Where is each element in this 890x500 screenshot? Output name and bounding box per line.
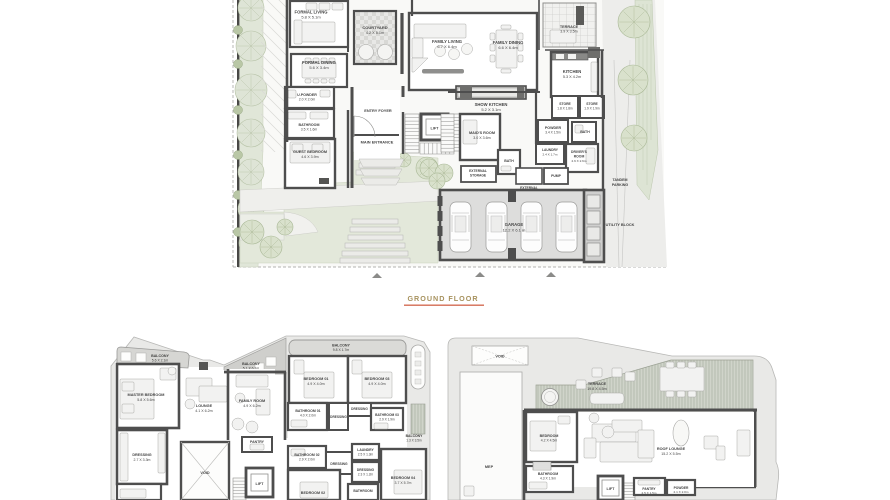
svg-text:FAMILY ROOM: FAMILY ROOM	[239, 399, 265, 403]
svg-text:BATHROOM: BATHROOM	[299, 123, 320, 127]
svg-text:BALCONY: BALCONY	[151, 354, 169, 358]
svg-text:KITCHEN: KITCHEN	[563, 69, 582, 74]
svg-text:UTILITY BLOCK: UTILITY BLOCK	[606, 223, 635, 227]
svg-text:MEP: MEP	[485, 465, 494, 469]
svg-text:1.8 X 1.8m: 1.8 X 1.8m	[557, 107, 573, 111]
svg-text:BATHROOM: BATHROOM	[538, 472, 558, 476]
svg-text:3.4 X 1.5m: 3.4 X 1.5m	[545, 131, 561, 135]
svg-text:COURTYARD: COURTYARD	[362, 25, 387, 30]
svg-text:4.1 X 6.2m: 4.1 X 6.2m	[195, 409, 212, 413]
svg-text:15.2 X 5.5m: 15.2 X 5.5m	[661, 452, 680, 456]
svg-text:3.0 X 3.6m: 3.0 X 3.6m	[473, 136, 490, 140]
svg-text:PANTRY: PANTRY	[250, 440, 265, 444]
svg-text:4.3 X 1.9m: 4.3 X 1.9m	[540, 477, 556, 481]
svg-text:BALCONY: BALCONY	[242, 362, 260, 366]
svg-text:MASTER BEDROOM: MASTER BEDROOM	[128, 393, 165, 397]
svg-text:4.9 X 4.0m: 4.9 X 4.0m	[368, 382, 385, 386]
svg-text:DRESSING: DRESSING	[132, 453, 151, 457]
svg-text:4.0 X 2.0m: 4.0 X 2.0m	[300, 414, 316, 418]
svg-text:DRIVER'S: DRIVER'S	[571, 150, 588, 154]
svg-text:4.9 X 4.0m: 4.9 X 4.0m	[307, 382, 324, 386]
svg-text:LIFT: LIFT	[606, 487, 615, 491]
svg-text:2.1 X 2.0m: 2.1 X 2.0m	[674, 490, 689, 494]
svg-text:2.0 X 2.0m: 2.0 X 2.0m	[299, 98, 316, 102]
svg-text:4.2 X 4.5m: 4.2 X 4.5m	[541, 439, 558, 443]
svg-text:5.6 X 2.1m: 5.6 X 2.1m	[152, 359, 169, 363]
svg-text:MAID'S ROOM: MAID'S ROOM	[469, 131, 495, 135]
svg-text:DRESSING: DRESSING	[330, 462, 348, 466]
svg-text:BATHROOM: BATHROOM	[353, 489, 372, 493]
svg-text:LAUNDRY: LAUNDRY	[542, 148, 559, 152]
svg-text:BATH: BATH	[580, 130, 590, 134]
svg-text:3.5 X 1.6m: 3.5 X 1.6m	[301, 128, 318, 132]
svg-text:U.POWDER: U.POWDER	[297, 93, 317, 97]
svg-text:2.9 X 2.0m: 2.9 X 2.0m	[299, 458, 315, 462]
svg-text:MAIN ENTRANCE: MAIN ENTRANCE	[361, 140, 394, 145]
svg-text:ROOM: ROOM	[574, 155, 585, 159]
svg-text:DRESSING: DRESSING	[357, 468, 375, 472]
svg-text:4.9 X 6.2m: 4.9 X 6.2m	[243, 404, 260, 408]
svg-text:BEDROOM 04: BEDROOM 04	[391, 476, 416, 480]
svg-text:PARKING: PARKING	[612, 183, 629, 187]
svg-text:5.8 X 5.6m: 5.8 X 5.6m	[137, 398, 154, 402]
svg-text:12.2 X 6.1 m: 12.2 X 6.1 m	[503, 228, 526, 233]
svg-text:STORE: STORE	[559, 102, 571, 106]
svg-text:EXTERNAL: EXTERNAL	[469, 169, 487, 173]
svg-text:BATHROOM 01: BATHROOM 01	[295, 409, 320, 413]
svg-text:5.6 X 3.4m: 5.6 X 3.4m	[309, 65, 329, 70]
svg-text:3.9 X 3.5m: 3.9 X 3.5m	[560, 30, 577, 34]
svg-text:VOID: VOID	[200, 471, 210, 475]
svg-text:BEDROOM 02: BEDROOM 02	[301, 491, 325, 495]
svg-text:ROOF LOUNGE: ROOF LOUNGE	[657, 447, 686, 451]
svg-text:2.7 X 3.3m: 2.7 X 3.3m	[134, 458, 151, 462]
svg-text:DRESSING: DRESSING	[330, 415, 347, 419]
svg-text:LIFT: LIFT	[255, 482, 264, 486]
svg-text:6.7 X 6.4m: 6.7 X 6.4m	[437, 44, 457, 49]
svg-text:STORE: STORE	[586, 102, 598, 106]
svg-text:19.8 X 4.5m: 19.8 X 4.5m	[587, 387, 606, 391]
svg-text:BEDROOM 01: BEDROOM 01	[303, 377, 328, 381]
svg-text:DRESSING: DRESSING	[351, 407, 368, 411]
svg-text:3.7 X 5.7m: 3.7 X 5.7m	[395, 481, 412, 485]
svg-text:6.6 X 6.4m: 6.6 X 6.4m	[498, 45, 518, 50]
svg-text:LOUNGE: LOUNGE	[196, 404, 213, 408]
svg-text:1.3 X 3.5m: 1.3 X 3.5m	[406, 439, 422, 443]
svg-text:BALCONY: BALCONY	[332, 344, 350, 348]
svg-text:STORAGE: STORAGE	[470, 174, 487, 178]
svg-text:2.3 X 1.2m: 2.3 X 1.2m	[358, 473, 374, 477]
svg-text:5.8 X 5.1m: 5.8 X 5.1m	[301, 15, 321, 20]
svg-text:BATH: BATH	[504, 159, 514, 163]
svg-text:BATHROOM 02: BATHROOM 02	[294, 453, 319, 457]
svg-text:POWDER: POWDER	[545, 126, 562, 130]
svg-text:VOID: VOID	[495, 355, 505, 359]
svg-text:BEDROOM 03: BEDROOM 03	[364, 377, 389, 381]
svg-text:2.5 X 1.3m: 2.5 X 1.3m	[358, 453, 374, 457]
svg-text:LAUNDRY: LAUNDRY	[357, 448, 374, 452]
svg-text:9.8 X 1.7m: 9.8 X 1.7m	[333, 348, 350, 352]
svg-text:TERRACE: TERRACE	[588, 382, 607, 386]
svg-text:TANDEM: TANDEM	[612, 178, 627, 182]
svg-text:2.5 X 1.5m: 2.5 X 1.5m	[642, 491, 657, 495]
svg-text:2.9 X 1.9m: 2.9 X 1.9m	[379, 418, 395, 422]
svg-text:GROUND FLOOR: GROUND FLOOR	[407, 294, 478, 303]
svg-text:GARAGE: GARAGE	[505, 222, 524, 227]
svg-text:1.9 X 1.9m: 1.9 X 1.9m	[584, 107, 600, 111]
svg-text:2.4 X 1.7m: 2.4 X 1.7m	[543, 153, 558, 157]
svg-text:GUEST BEDROOM: GUEST BEDROOM	[293, 150, 327, 154]
svg-text:5.2 X 3.1m: 5.2 X 3.1m	[481, 107, 501, 112]
svg-text:4.2 X 5.1m: 4.2 X 5.1m	[366, 31, 384, 35]
svg-text:TERRACE: TERRACE	[560, 25, 579, 29]
svg-text:4.6 X 3.9m: 4.6 X 3.9m	[301, 155, 318, 159]
svg-text:5.3 X 4.2m: 5.3 X 4.2m	[563, 75, 581, 79]
svg-text:LIFT: LIFT	[430, 127, 439, 131]
svg-text:BEDROOM: BEDROOM	[540, 434, 559, 438]
svg-text:BALCONY: BALCONY	[406, 434, 424, 438]
svg-text:2.6 X 2.6m: 2.6 X 2.6m	[572, 159, 587, 163]
svg-text:BATHROOM 03: BATHROOM 03	[375, 413, 399, 417]
svg-text:ENTRY FOYER: ENTRY FOYER	[364, 108, 392, 113]
svg-text:PUMP: PUMP	[551, 174, 562, 178]
